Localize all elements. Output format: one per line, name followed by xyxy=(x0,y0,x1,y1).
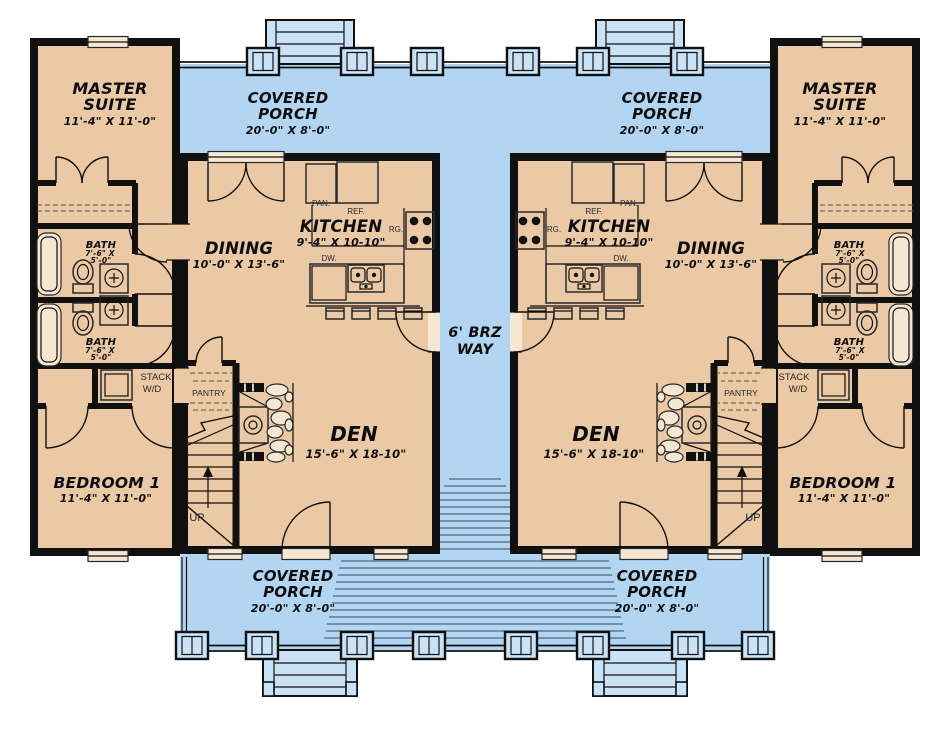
pantry-label-right: PANTRY xyxy=(724,388,758,398)
dishwasher-label-left: DW. xyxy=(321,254,336,263)
floor-plan-drawing: MASTER SUITE 11'-4" X 11'-0" MASTER SUIT… xyxy=(0,0,950,729)
front-porch-dims-left: 20'-0" X 8'-0" xyxy=(246,124,331,137)
stack-wd-label-right: STACK xyxy=(779,372,811,383)
breezeway-label: WAY xyxy=(457,342,494,358)
den-label-left: DEN xyxy=(330,422,378,446)
den-label-right: DEN xyxy=(572,422,620,446)
range-label-left: RG. xyxy=(389,225,403,234)
bedroom1-dims-left: 11'-4" X 11'-0" xyxy=(60,492,152,505)
range-label-right: RG. xyxy=(547,225,561,234)
floor-plan-page: MASTER SUITE 11'-4" X 11'-0" MASTER SUIT… xyxy=(0,0,950,729)
stack-wd-label-left: STACK xyxy=(141,372,173,383)
dining-dims-left: 10'-0" X 13'-6" xyxy=(193,258,285,271)
master-suite-dims-right: 11'-4" X 11'-0" xyxy=(794,115,886,128)
kitchen-dims-right: 9'-4" X 10-10" xyxy=(565,236,654,249)
bath2-dims-right: 5'-0" xyxy=(839,353,860,362)
up-label-left: UP xyxy=(189,512,204,524)
kitchen-dims-left: 9'-4" X 10-10" xyxy=(297,236,386,249)
stack-wd-label-right: W/D xyxy=(789,384,808,395)
pantry-label-left: PANTRY xyxy=(192,388,226,398)
bath1-dims-right: 5'-0" xyxy=(839,256,860,265)
kitchen-label-left: KITCHEN xyxy=(300,217,383,236)
front-porch-label-left: PORCH xyxy=(258,105,318,123)
master-suite-label-left: SUITE xyxy=(83,95,136,114)
front-porch-dims-right: 20'-0" X 8'-0" xyxy=(620,124,705,137)
pantry-cabinet-label-left: PAN. xyxy=(312,199,330,208)
master-suite-label-right: SUITE xyxy=(813,95,866,114)
breezeway-label: 6' BRZ xyxy=(448,325,502,341)
bath1-dims-left: 5'-0" xyxy=(91,256,112,265)
refrigerator-label-right: REF. xyxy=(585,207,602,216)
rear-porch-label-right: PORCH xyxy=(627,583,687,601)
bath2-dims-left: 5'-0" xyxy=(91,353,112,362)
refrigerator-label-left: REF. xyxy=(347,207,364,216)
pantry-cabinet-label-right: PAN. xyxy=(620,199,638,208)
rear-porch-dims-left: 20'-0" X 8'-0" xyxy=(251,602,336,615)
rear-porch-dims-right: 20'-0" X 8'-0" xyxy=(615,602,700,615)
rear-porch-label-left: PORCH xyxy=(263,583,323,601)
up-label-right: UP xyxy=(745,512,760,524)
kitchen-label-right: KITCHEN xyxy=(568,217,651,236)
dishwasher-label-right: DW. xyxy=(613,254,628,263)
stack-wd-label-left: W/D xyxy=(143,384,162,395)
bedroom1-label-right: BEDROOM 1 xyxy=(790,474,897,492)
den-dims-right: 15'-6" X 18-10" xyxy=(544,447,645,461)
master-suite-dims-left: 11'-4" X 11'-0" xyxy=(64,115,156,128)
front-porch-label-right: PORCH xyxy=(632,105,692,123)
dining-label-left: DINING xyxy=(205,239,273,258)
dining-label-right: DINING xyxy=(677,239,745,258)
den-dims-left: 15'-6" X 18-10" xyxy=(306,447,407,461)
bedroom1-dims-right: 11'-4" X 11'-0" xyxy=(798,492,890,505)
bedroom1-label-left: BEDROOM 1 xyxy=(54,474,161,492)
dining-dims-right: 10'-0" X 13'-6" xyxy=(665,258,757,271)
